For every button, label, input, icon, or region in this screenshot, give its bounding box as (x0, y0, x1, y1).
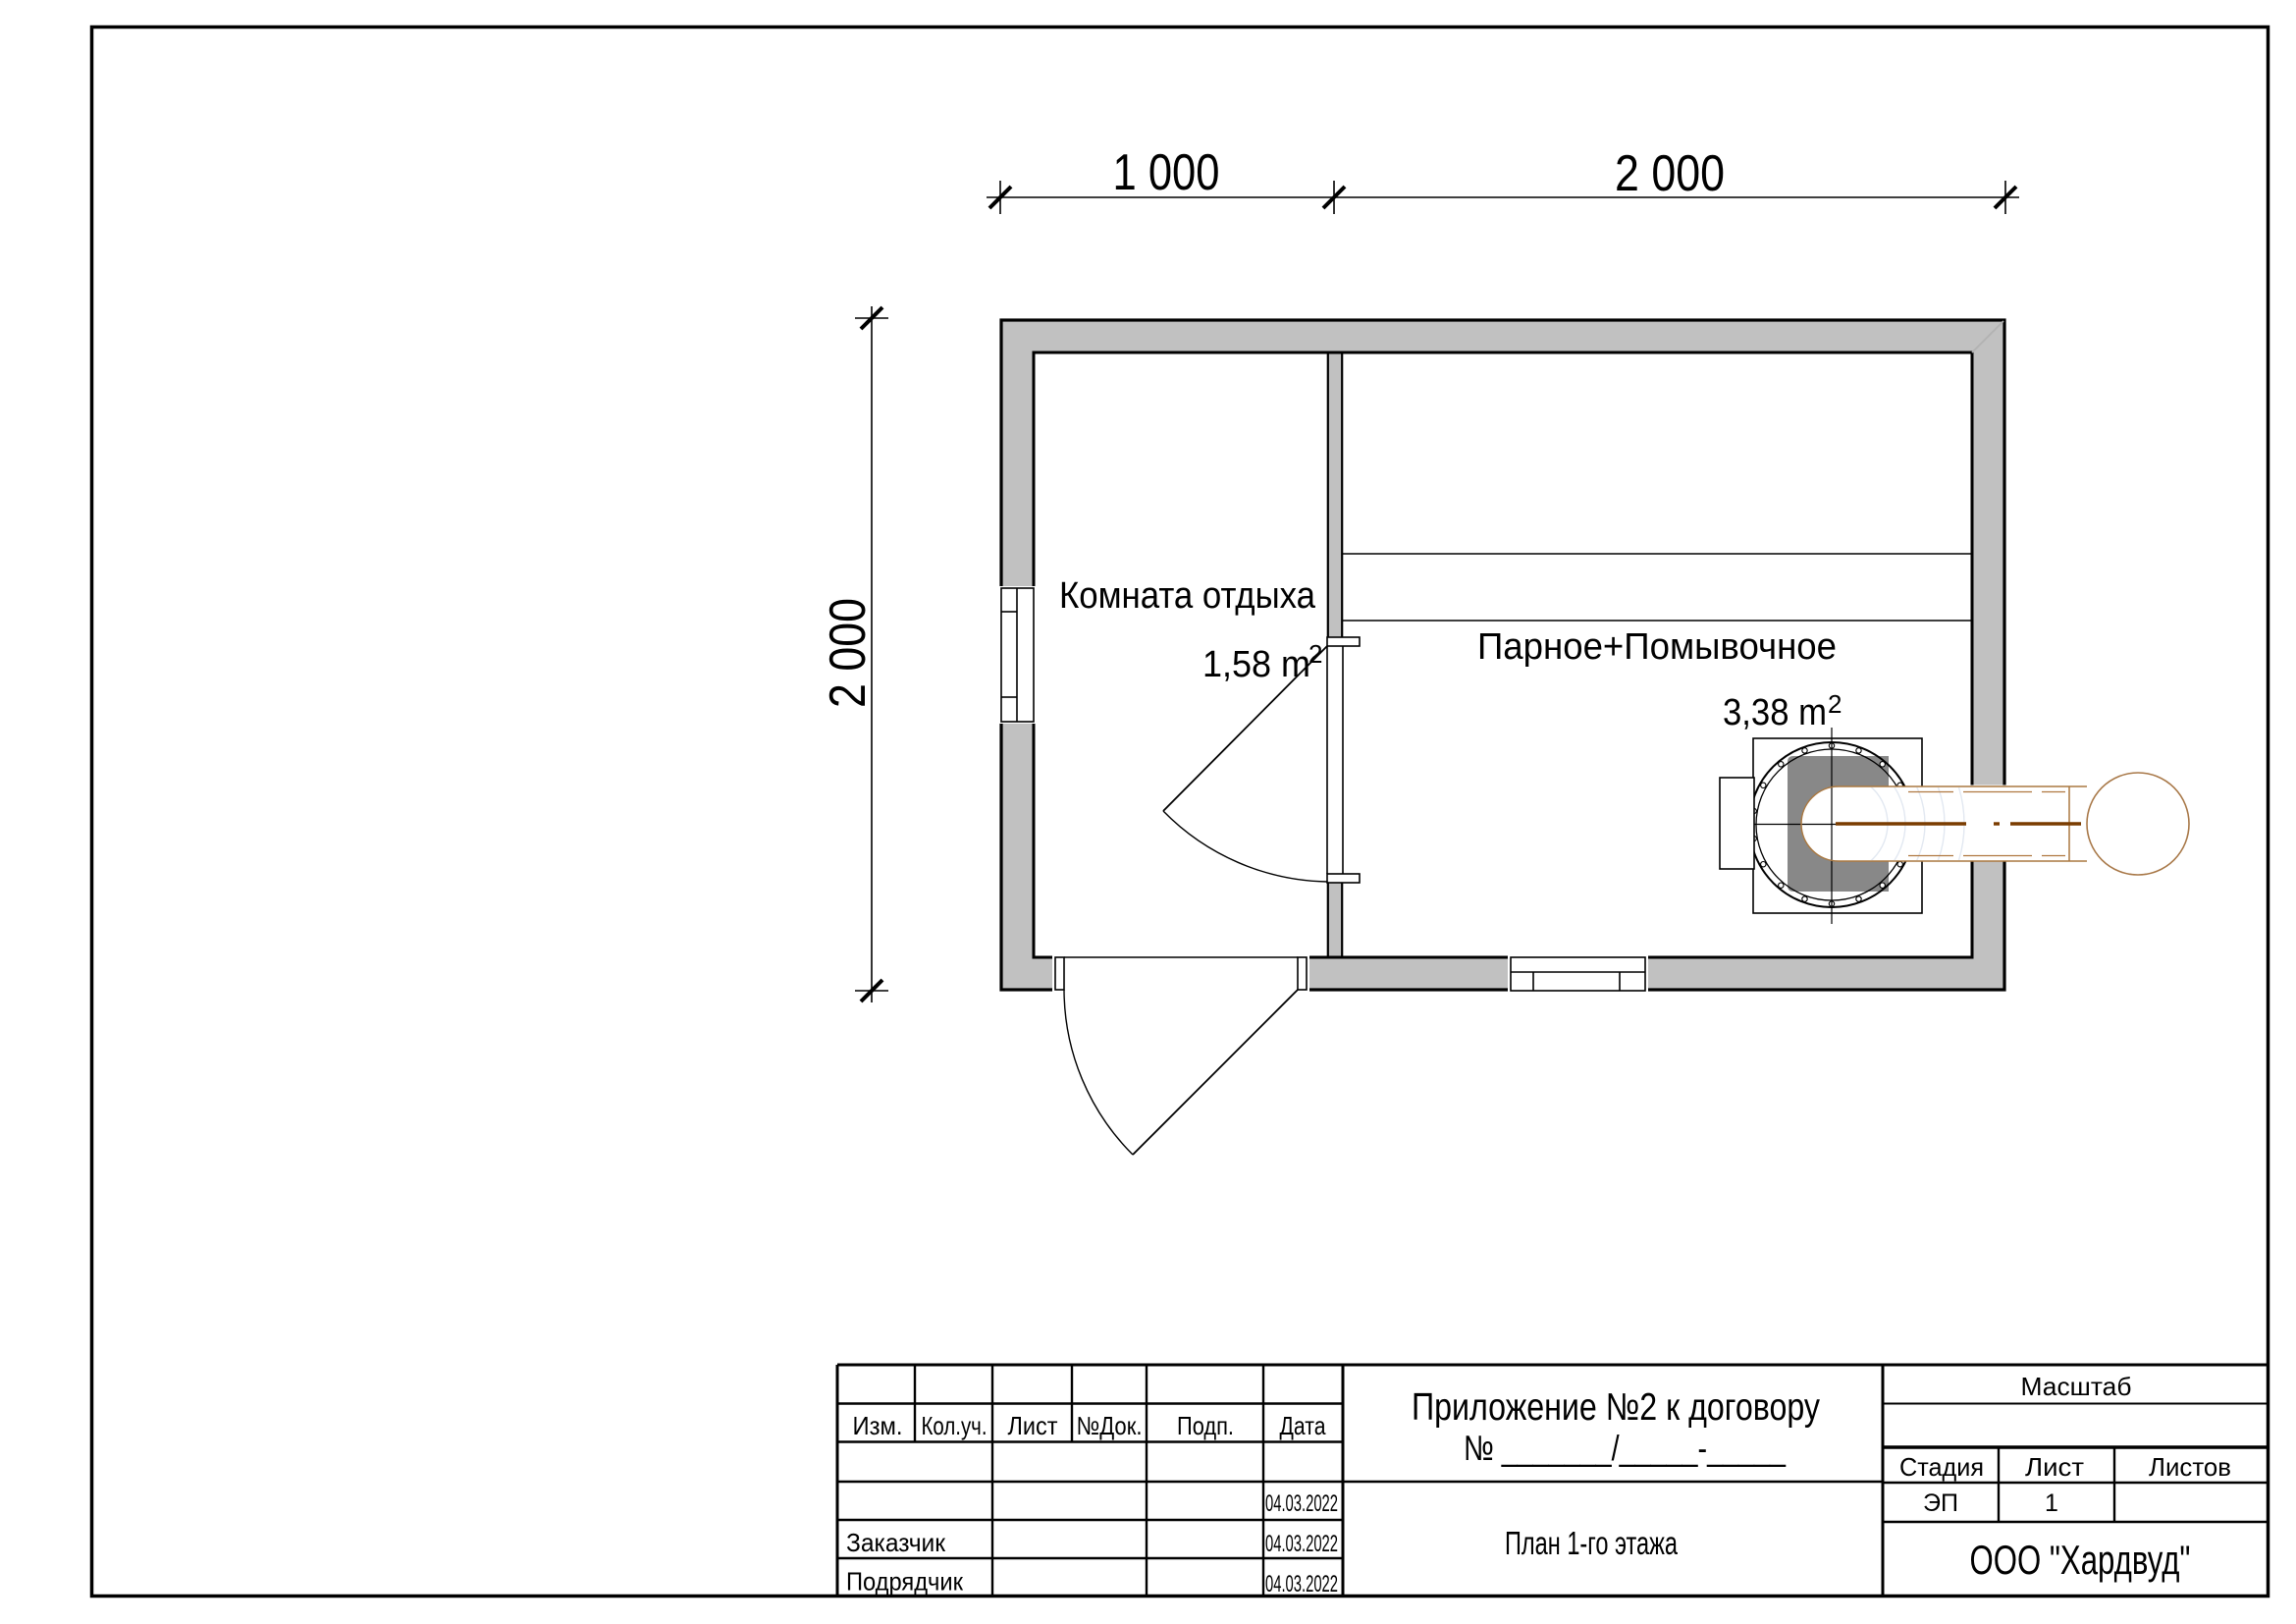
svg-text:Масштаб: Масштаб (2021, 1372, 2132, 1401)
svg-text:Лист: Лист (1008, 1411, 1058, 1440)
svg-text:ООО "Хардвуд": ООО "Хардвуд" (1970, 1537, 2191, 1583)
svg-text:Заказчик: Заказчик (846, 1528, 946, 1557)
svg-text:Кол.уч.: Кол.уч. (922, 1411, 988, 1440)
svg-text:Дата: Дата (1280, 1411, 1326, 1440)
svg-text:ЭП: ЭП (1923, 1489, 1958, 1517)
svg-text:Подп.: Подп. (1177, 1411, 1234, 1440)
svg-text:Подрядчик: Подрядчик (846, 1567, 964, 1597)
svg-text:1 000: 1 000 (1113, 144, 1220, 201)
svg-text:04.03.2022: 04.03.2022 (1265, 1571, 1338, 1597)
svg-text:2 000: 2 000 (1615, 145, 1725, 202)
svg-text:Стадия: Стадия (1899, 1452, 1984, 1482)
svg-text:Парное+Помывочное: Парное+Помывочное (1477, 626, 1837, 668)
svg-text:2: 2 (1828, 689, 1842, 719)
svg-text:04.03.2022: 04.03.2022 (1265, 1531, 1338, 1557)
svg-text:Комната отдыха: Комната отдыха (1059, 575, 1316, 617)
svg-text:Листов: Листов (2149, 1452, 2231, 1482)
svg-text:3,38 m: 3,38 m (1723, 692, 1827, 733)
svg-text:№ _______/_____-_____: № _______/_____-_____ (1464, 1428, 1787, 1468)
svg-text:План 1-го этажа: План 1-го этажа (1505, 1525, 1678, 1561)
svg-text:№Док.: №Док. (1077, 1411, 1143, 1440)
svg-text:04.03.2022: 04.03.2022 (1265, 1490, 1338, 1517)
svg-text:1,58 m: 1,58 m (1202, 644, 1310, 685)
svg-text:Изм.: Изм. (853, 1411, 903, 1440)
svg-text:2: 2 (1308, 639, 1322, 669)
svg-text:1: 1 (2045, 1489, 2058, 1517)
svg-text:Лист: Лист (2025, 1452, 2084, 1482)
svg-text:2 000: 2 000 (820, 598, 877, 708)
svg-text:Приложение №2 к договору: Приложение №2 к договору (1412, 1386, 1820, 1429)
